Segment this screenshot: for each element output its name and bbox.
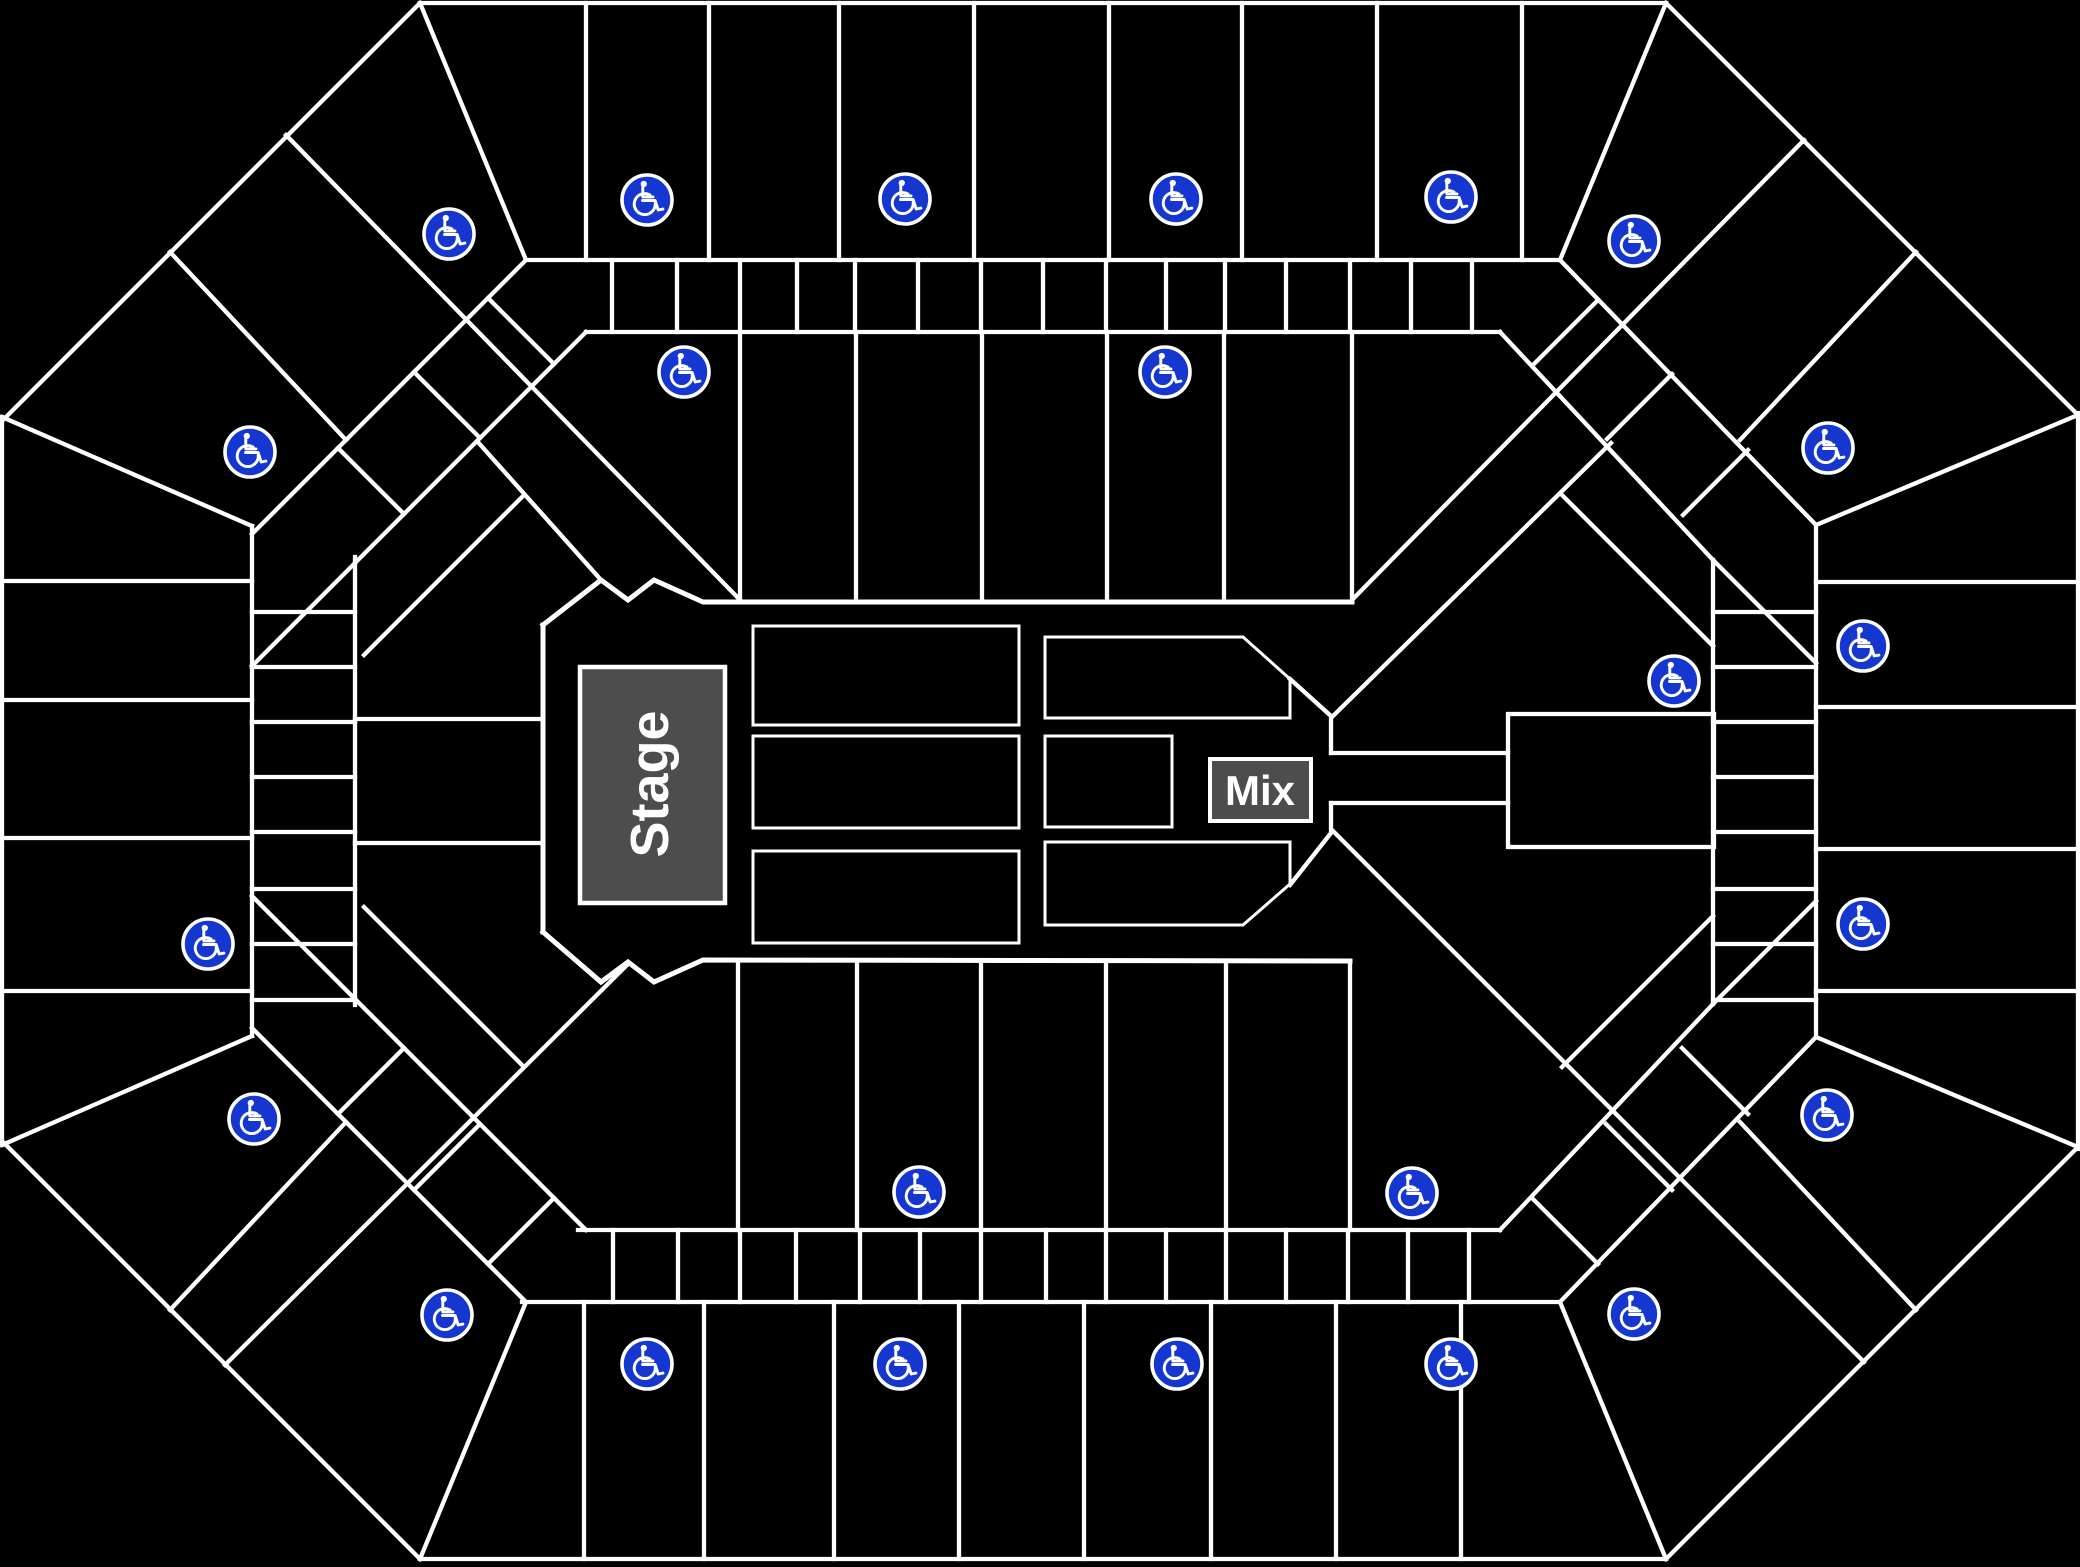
svg-text:Stage: Stage xyxy=(620,710,680,857)
svg-text:Mix: Mix xyxy=(1225,767,1296,814)
